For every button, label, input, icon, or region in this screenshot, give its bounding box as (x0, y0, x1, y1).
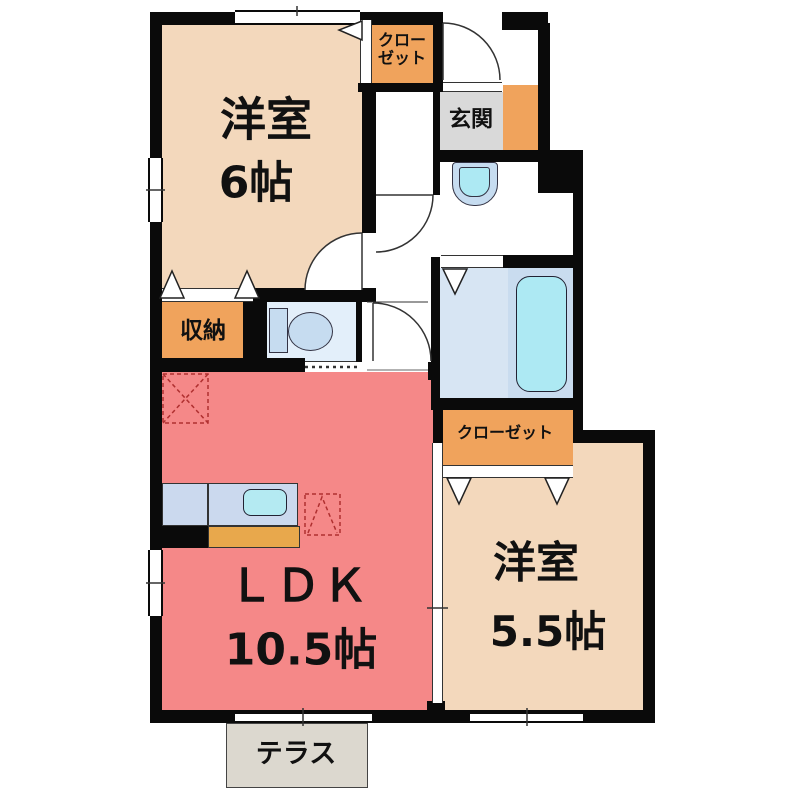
window-bedroom6-top (235, 10, 360, 25)
bathtub (516, 276, 567, 392)
closet-top-line2: ゼット (378, 50, 426, 68)
wall-hall-right-2 (431, 257, 440, 410)
wall-left-2 (150, 222, 162, 550)
terrace-label: テラス (256, 738, 336, 769)
wall-top-mid (360, 12, 443, 25)
storage-label: 収納 (180, 318, 226, 344)
kitchen-stove-block (162, 526, 208, 548)
ldk-size: 10.5帖 (225, 626, 378, 677)
floor-plan: 洋室 6帖 クロー ゼット 玄関 収納 ＬＤＫ 10.5帖 クローゼット 洋室 … (0, 0, 800, 800)
kitchen-counter-divider (207, 483, 209, 526)
bathroom-door-threshold (441, 255, 503, 268)
entrance-side-strip (503, 85, 538, 152)
kitchen-sink (243, 489, 287, 516)
closet-bottom-front (443, 465, 573, 478)
closet-top-line1: クロー (378, 32, 426, 50)
window-bedroom55-bottom (470, 712, 583, 723)
bedroom6-size: 6帖 (219, 159, 294, 210)
wall-washroom-top (440, 150, 583, 162)
bedroom55-size: 5.5帖 (490, 608, 606, 656)
wall-bath-top (503, 255, 573, 268)
bedroom6-name: 洋室 (220, 94, 312, 147)
window-ldk-bottom (235, 712, 372, 723)
washbasin-inner (459, 167, 490, 197)
washroom-door-swing (376, 195, 433, 252)
bedroom55-name: 洋室 (493, 539, 579, 588)
wall-left-3 (150, 616, 162, 723)
wall-bedroom6-right (362, 83, 376, 233)
wall-hall-right-1 (433, 92, 440, 195)
toilet-door-swing (367, 302, 431, 361)
entrance-label: 玄関 (449, 107, 493, 132)
ldk-name: ＬＤＫ (228, 560, 369, 612)
wall-right-mid (573, 193, 583, 433)
window-ldk-left (148, 550, 163, 616)
wall-right-lower (643, 430, 655, 715)
closet-bottom-label: クローゼット (457, 424, 553, 442)
toilet-bowl (288, 312, 333, 351)
wall-top-left (150, 12, 235, 25)
kitchen-cabinet (208, 526, 300, 548)
wall-right-upper (538, 23, 550, 152)
toilet-tank (269, 308, 288, 353)
wall-bedroom6-bottom (253, 288, 376, 302)
wall-toilet-right (356, 302, 362, 362)
wall-left-1 (150, 12, 162, 158)
wall-bath-bottom (433, 398, 583, 410)
storage-door-front (162, 288, 253, 302)
window-bedroom6-left (148, 158, 163, 222)
closet-top-front (360, 20, 372, 83)
entrance-door-threshold (443, 82, 502, 92)
wall-closet-top-right (433, 12, 443, 92)
closet-top-label: クロー ゼット (378, 32, 426, 69)
wall-below-storage (162, 358, 305, 372)
sliding-partition-ldk-55 (432, 443, 443, 703)
wall-hall-right-block (428, 362, 440, 380)
entrance-door-swing (443, 23, 500, 80)
